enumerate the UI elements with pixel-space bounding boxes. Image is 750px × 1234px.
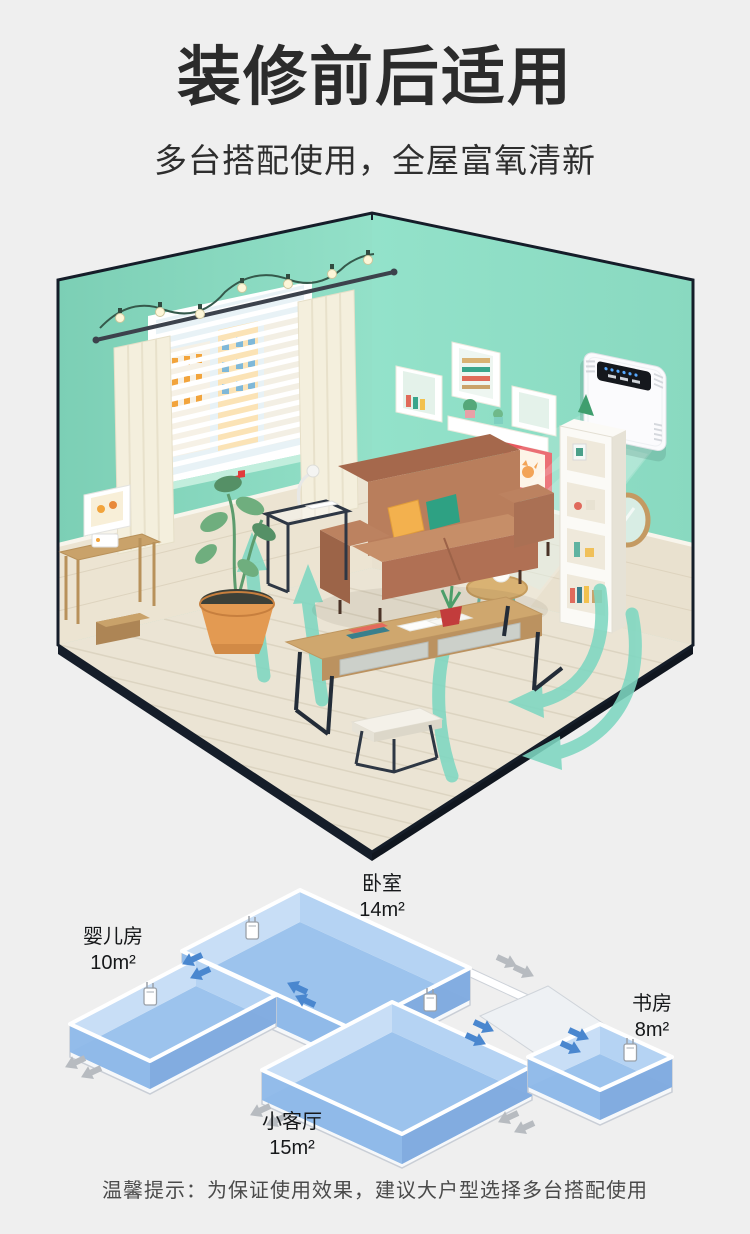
page-title: 装修前后适用 bbox=[0, 42, 750, 112]
warm-tip: 温馨提示：为保证使用效果，建议大户型选择多台搭配使用 bbox=[0, 1174, 750, 1203]
label-baby-room: 婴儿房 10m² bbox=[52, 925, 174, 976]
room-name: 书房 bbox=[602, 992, 702, 1018]
room-area: 8m² bbox=[602, 1018, 702, 1044]
tall-bookshelf bbox=[560, 394, 626, 633]
room-area: 15m² bbox=[232, 1136, 352, 1162]
room-area: 10m² bbox=[52, 951, 174, 977]
room-name: 婴儿房 bbox=[52, 925, 174, 951]
product-infographic-page: 装修前后适用 多台搭配使用，全屋富氧清新 bbox=[0, 0, 750, 1234]
room-name: 卧室 bbox=[322, 872, 442, 898]
living-room-illustration bbox=[0, 190, 750, 862]
label-study: 书房 8m² bbox=[602, 992, 702, 1043]
room-name: 小客厅 bbox=[232, 1110, 352, 1136]
room-area: 14m² bbox=[322, 898, 442, 924]
label-living-room: 小客厅 15m² bbox=[232, 1110, 352, 1161]
label-bedroom: 卧室 14m² bbox=[322, 872, 442, 923]
page-subtitle: 多台搭配使用，全屋富氧清新 bbox=[0, 134, 750, 182]
